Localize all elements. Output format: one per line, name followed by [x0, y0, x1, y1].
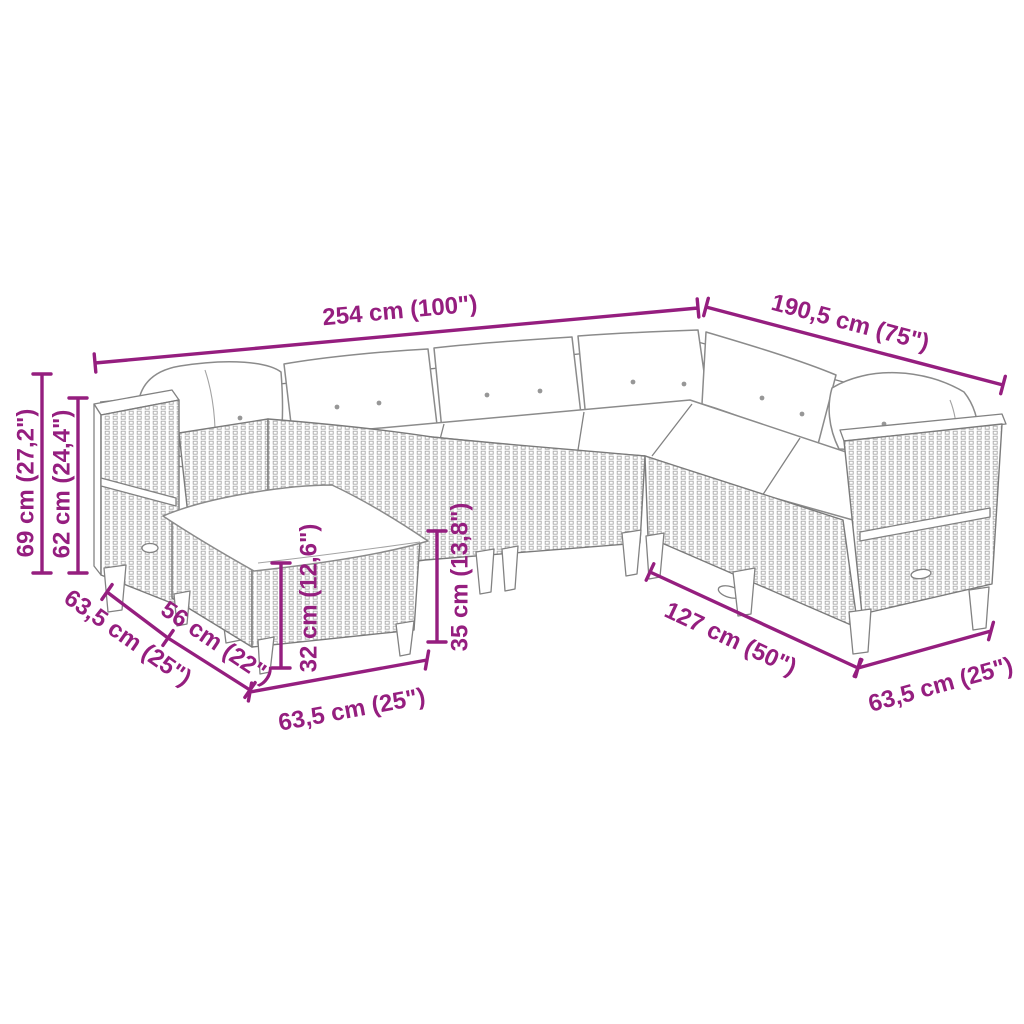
- dim-back-height-label: 62 cm (24,4"): [48, 410, 75, 559]
- dim-back-height: 62 cm (24,4"): [48, 398, 87, 573]
- right-armrest-leg-front: [849, 609, 871, 654]
- dim-total-height-label: 69 cm (27,2"): [12, 409, 39, 558]
- dim-base-height-label: 35 cm (13,8"): [446, 503, 473, 652]
- right-armrest-leg-back: [969, 587, 989, 630]
- left-armrest-hole: [142, 544, 158, 553]
- dim-right-module-depth: 63,5 cm (25"): [856, 622, 1016, 717]
- product-dimension-diagram: 254 cm (100") 190,5 cm (75") 69 cm (27,2…: [0, 0, 1024, 1024]
- left-armrest-edge: [94, 404, 101, 575]
- dim-footstool-width: 63,5 cm (25"): [248, 651, 428, 737]
- left-armrest: [94, 390, 179, 612]
- dim-total-height: 69 cm (27,2"): [12, 374, 51, 573]
- dim-seat-height-label: 32 cm (12,6"): [295, 524, 322, 673]
- dim-right-module-depth-label: 63,5 cm (25"): [865, 652, 1016, 718]
- right-armrest: [840, 414, 1006, 654]
- sofa-illustration: [94, 330, 1006, 674]
- dim-overall-width-label: 254 cm (100"): [321, 290, 478, 331]
- dim-footstool-width-label: 63,5 cm (25"): [276, 683, 427, 737]
